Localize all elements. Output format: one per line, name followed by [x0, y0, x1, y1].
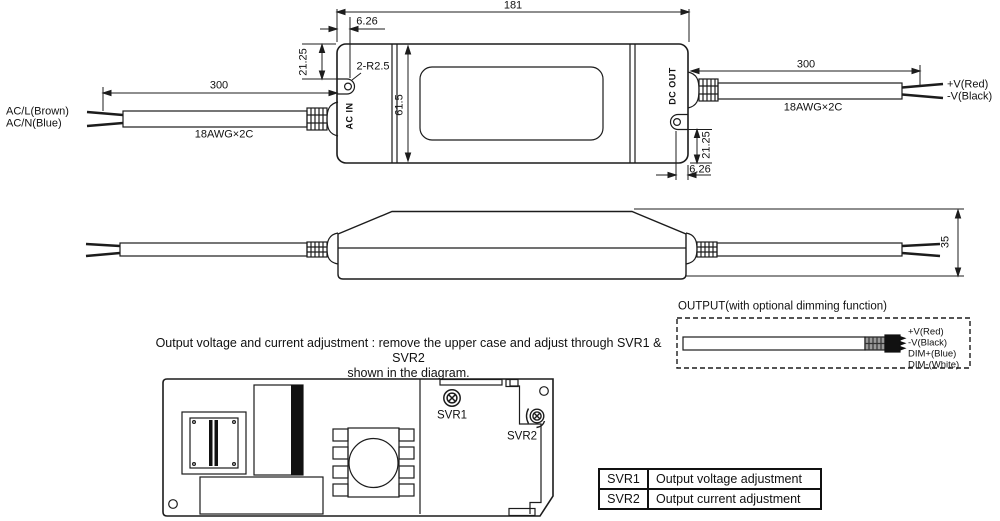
table-row: SVR2 Output current adjustment: [599, 489, 821, 509]
dimension-lines-front: [103, 9, 920, 180]
pcb-capacitor: [254, 385, 303, 475]
dim-wire-label-vminus: -V(Black): [908, 338, 947, 348]
table-cell-desc: Output current adjustment: [648, 489, 821, 509]
dc-out-label: DC OUT: [669, 67, 678, 105]
svr2-screw[interactable]: [527, 409, 545, 428]
dim-notch-offset-right: 21.25: [702, 131, 713, 159]
ac-in-label: AC IN: [346, 103, 355, 130]
pcb-drawing: [163, 379, 553, 516]
adjustment-note: Output voltage and current adjustment : …: [138, 336, 679, 381]
dim-wire-label-dimplus: DIM+(Blue): [908, 349, 956, 359]
svr1-label: SVR1: [437, 410, 467, 422]
output-wire1-label: +V(Red): [947, 80, 988, 91]
side-view: [86, 212, 940, 280]
dim-notch-depth-right: 6.26: [689, 165, 710, 176]
pcb-bottom-component: [200, 477, 323, 514]
table-cell-name: SVR2: [599, 489, 648, 509]
dim-side-height: 35: [941, 236, 952, 248]
output-gauge-label: 18AWG×2C: [784, 103, 843, 114]
table-row: SVR1 Output voltage adjustment: [599, 469, 821, 489]
technical-drawing-page: 181 6.26 21.25 2-R2.5 61.5 AC IN DC OUT …: [0, 0, 1000, 521]
adjustment-note-line2: shown in the diagram.: [138, 366, 679, 381]
pcb-transformer: [182, 412, 246, 474]
dim-body-height: 61.5: [395, 94, 406, 115]
adjustment-note-line1: Output voltage and current adjustment : …: [138, 336, 679, 366]
dim-notch-depth-left: 6.26: [356, 17, 377, 28]
svr1-screw[interactable]: [444, 390, 460, 406]
dim-wire-label-dimminus: DIM-(White): [908, 360, 959, 370]
dim-output-length: 300: [797, 60, 815, 71]
output-section-title: OUTPUT(with optional dimming function): [678, 301, 887, 313]
input-gauge-label: 18AWG×2C: [195, 130, 254, 141]
output-wire2-label: -V(Black): [947, 92, 992, 103]
front-view-body: [337, 44, 688, 163]
svr-adjustment-table: SVR1 Output voltage adjustment SVR2 Outp…: [598, 468, 822, 510]
input-wire1-label: AC/L(Brown): [6, 107, 69, 118]
line-art: [0, 0, 1000, 521]
dim-notch-offset-left: 21.25: [299, 48, 310, 76]
table-cell-desc: Output voltage adjustment: [648, 469, 821, 489]
table-cell-name: SVR1: [599, 469, 648, 489]
pcb-inductor: [333, 428, 414, 497]
svr2-label: SVR2: [507, 431, 537, 443]
dim-input-length: 300: [210, 81, 228, 92]
input-wire2-label: AC/N(Blue): [6, 119, 62, 130]
radius-note: 2-R2.5: [356, 62, 389, 73]
dim-wire-label-vplus: +V(Red): [908, 327, 944, 337]
dim-width-label: 181: [504, 1, 522, 12]
mounting-slot-left: [337, 79, 355, 94]
pcb-output-subboard: [420, 379, 541, 514]
mounting-slot-right: [671, 115, 689, 130]
